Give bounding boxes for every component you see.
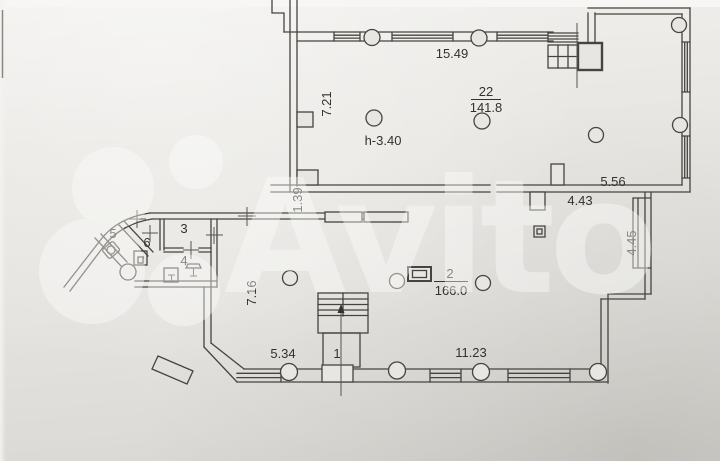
avito-watermark: Avito <box>39 135 652 330</box>
column <box>471 30 487 46</box>
logo-circle-icon <box>39 218 145 324</box>
dim-bottom-right: 11.23 <box>455 345 487 360</box>
upper-room-columns <box>364 18 688 143</box>
logo-circle-icon <box>72 147 154 229</box>
watermark-brand-text: Avito <box>224 146 652 330</box>
pilaster <box>297 112 313 127</box>
floorplan-photo: 15.49 7.21 22 141.8 h-3.40 5.56 1.39 4.4… <box>0 0 720 461</box>
logo-circle-icon <box>148 254 220 326</box>
column <box>673 118 688 133</box>
avito-logo-circles <box>39 135 223 326</box>
dim-bottom-left: 5.34 <box>270 346 295 361</box>
column <box>473 364 490 381</box>
room-stair-number: 1 <box>333 346 340 361</box>
column <box>364 30 380 46</box>
column <box>281 364 298 381</box>
room-upper-number: 22 <box>479 84 493 99</box>
column <box>474 113 490 129</box>
floorplan-drawing: 15.49 7.21 22 141.8 h-3.40 5.56 1.39 4.4… <box>0 0 720 461</box>
logo-circle-icon <box>169 135 223 189</box>
room-upper-area: 141.8 <box>470 100 503 115</box>
column <box>590 364 607 381</box>
dim-top-wall: 15.49 <box>436 46 469 61</box>
column <box>589 128 604 143</box>
column <box>672 18 687 33</box>
diagonal-block <box>152 356 193 384</box>
dim-upper-left: 7.21 <box>319 91 334 116</box>
column <box>389 362 406 379</box>
room-6-number: 6 <box>143 235 150 250</box>
room-3-number: 3 <box>180 221 187 236</box>
column <box>366 110 382 126</box>
